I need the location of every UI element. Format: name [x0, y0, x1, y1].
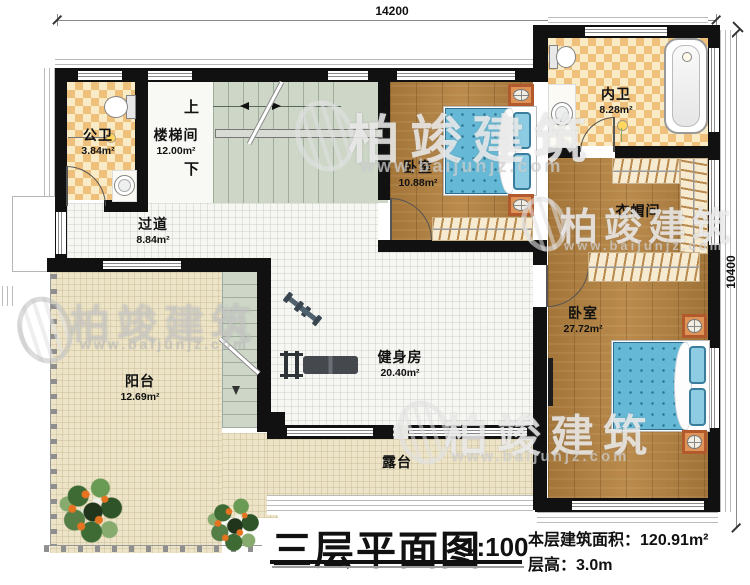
floor-plan-canvas: 14200 10400: [0, 0, 750, 585]
room-name: 衣帽间: [616, 203, 661, 219]
sink-icon: [551, 102, 573, 126]
sink-icon: [114, 175, 135, 196]
window: [148, 71, 192, 80]
bed-pillow: [689, 346, 706, 384]
room-name: 阳台: [125, 373, 155, 389]
door-leaf: [66, 166, 68, 206]
bed-pillow: [513, 112, 531, 149]
terrace-door-threshold: [393, 425, 409, 439]
toilet-icon: [104, 96, 128, 118]
window: [409, 428, 527, 436]
floor-area-label: 本层建筑面积：: [528, 532, 640, 549]
window-sill: [537, 512, 718, 525]
door-leaf: [390, 198, 392, 240]
stair-up-label: 上: [184, 96, 199, 117]
window: [709, 348, 719, 428]
wall: [378, 240, 540, 252]
title-underline: [270, 560, 522, 564]
room-area: 8.84m²: [136, 234, 169, 246]
stairs-upper-flight: [213, 82, 343, 203]
gym-floor: [270, 252, 533, 433]
dimension-label-top: 14200: [375, 4, 408, 18]
stair-arrow-left: [240, 102, 249, 110]
room-area: 3.84m²: [81, 145, 114, 157]
window-sill: [44, 68, 55, 200]
room-area: 12.69m²: [120, 391, 159, 403]
stair-handrail: [215, 129, 383, 138]
window: [397, 71, 515, 80]
stair-arrow-lower: [232, 386, 240, 395]
wall: [533, 307, 547, 433]
tv-icon: [548, 358, 553, 406]
lamp-icon: [513, 89, 529, 101]
room-name: 卧室: [568, 305, 598, 321]
plant-icon: [56, 472, 130, 552]
room-label-public-bath: 公卫 3.84m²: [81, 127, 114, 157]
room-name: 露台: [382, 454, 412, 470]
terrace-railing-bottom: [267, 495, 533, 515]
window: [287, 428, 373, 436]
room-label-terrace: 露台: [382, 454, 412, 472]
window: [709, 160, 719, 245]
shower-control-icon: [617, 120, 628, 131]
room-label-bedroom1: 卧室 10.88m²: [398, 159, 437, 189]
dimension-label-right: 10400: [724, 255, 738, 288]
door-leaf: [613, 117, 615, 152]
floor-height-value: 3.0m: [576, 557, 612, 574]
window: [78, 71, 122, 80]
bed-pillow: [513, 153, 531, 190]
window: [585, 27, 667, 36]
door-leaf: [546, 265, 548, 307]
wall: [615, 146, 708, 158]
stair-down-label: 下: [184, 158, 199, 179]
nightstand: [682, 314, 707, 338]
floor-height-label: 层高：: [528, 557, 576, 574]
room-area: 27.72m²: [563, 323, 602, 335]
sink-basin: [555, 106, 569, 122]
stairs-lower-flight: [222, 272, 258, 428]
sink-basin: [118, 179, 131, 192]
wall: [533, 240, 547, 265]
lamp-icon: [513, 199, 529, 211]
wall: [533, 433, 547, 510]
room-name: 公卫: [83, 127, 113, 143]
window-sill: [548, 17, 708, 25]
room-label-stairwell: 楼梯间 12.00m²: [154, 127, 199, 157]
hatch-detail: [2, 286, 16, 306]
wall: [55, 200, 66, 212]
window: [709, 48, 719, 132]
room-label-cloakroom: 衣帽间: [616, 203, 661, 221]
room-label-balcony: 阳台 12.69m²: [120, 373, 159, 403]
wall: [533, 25, 548, 82]
bench-rack-icon: [284, 351, 288, 379]
floor-area-info: 本层建筑面积：120.91m²: [528, 526, 709, 550]
room-name: 过道: [138, 216, 168, 232]
nightstand: [682, 430, 707, 454]
lamp-icon: [687, 435, 702, 449]
plant-icon: [205, 493, 266, 559]
toilet-icon: [556, 46, 576, 68]
window-sill: [55, 59, 537, 68]
room-name: 卧室: [403, 159, 433, 175]
room-label-gym: 健身房 20.40m²: [378, 349, 423, 379]
room-area: 8.28m²: [599, 104, 632, 116]
shower-stick: [621, 128, 622, 142]
room-area: 10.88m²: [398, 177, 437, 189]
window: [572, 501, 704, 510]
closet-strip: [432, 217, 533, 241]
bed-pillow: [689, 388, 706, 426]
room-label-private-bath: 内卫 8.28m²: [599, 86, 632, 116]
closet-strip: [588, 252, 700, 282]
nightstand: [508, 84, 534, 106]
room-name: 内卫: [601, 86, 631, 102]
closet-strip: [680, 158, 708, 254]
room-area: 12.00m²: [154, 145, 199, 157]
bench-press-icon: [303, 356, 358, 374]
wall: [257, 258, 271, 420]
title-underline-shadow: [272, 566, 524, 568]
room-name: 健身房: [378, 349, 423, 365]
room-label-hallway: 过道 8.84m²: [136, 216, 169, 246]
room-name: 楼梯间: [154, 127, 199, 143]
window: [56, 210, 66, 254]
lamp-icon: [687, 319, 702, 333]
bench-rack-icon: [295, 351, 299, 379]
window: [103, 261, 181, 269]
nightstand: [508, 194, 534, 216]
faucet-icon: [682, 52, 692, 62]
room-area: 20.40m²: [378, 367, 423, 379]
floor-height-info: 层高：3.0m: [528, 551, 612, 575]
window: [328, 71, 368, 80]
closet-strip: [612, 158, 680, 184]
room-label-bedroom2: 卧室 27.72m²: [563, 305, 602, 335]
floor-area-value: 120.91m²: [640, 532, 709, 549]
plan-scale: 1:100: [462, 532, 529, 563]
